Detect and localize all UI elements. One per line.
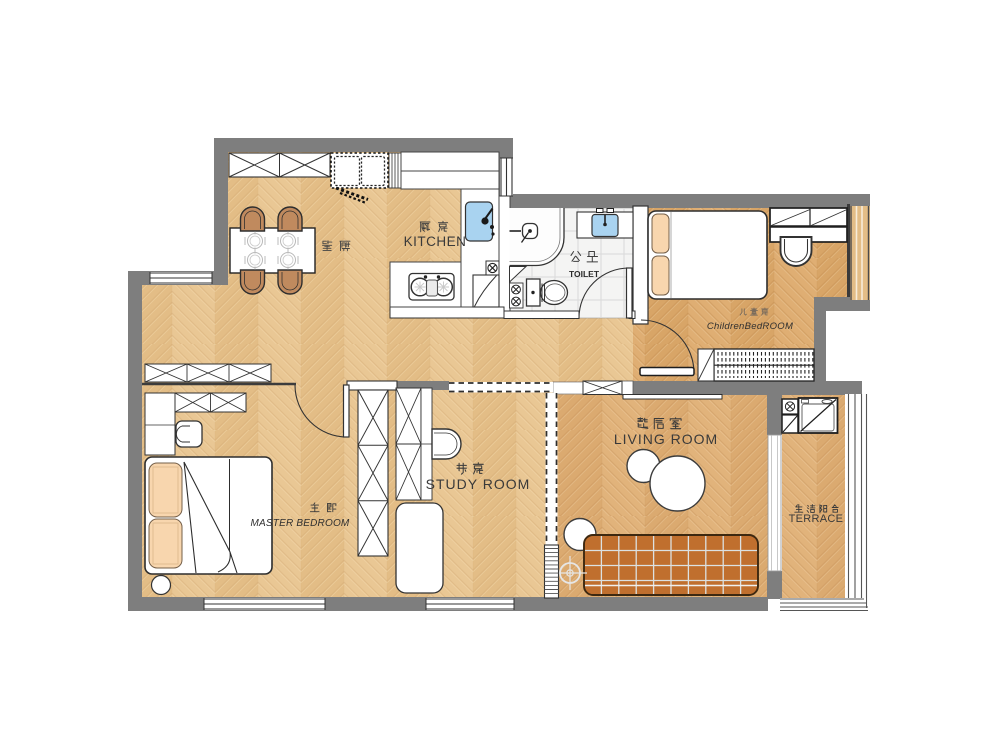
svg-text:STUDY ROOM: STUDY ROOM [426, 476, 531, 492]
svg-text:TOILET: TOILET [569, 269, 600, 279]
svg-text:LIVING ROOM: LIVING ROOM [614, 431, 718, 447]
svg-text:ChildrenBedROOM: ChildrenBedROOM [707, 321, 793, 332]
svg-text:KITCHEN: KITCHEN [404, 234, 467, 249]
svg-text:MASTER BEDROOM: MASTER BEDROOM [251, 518, 350, 529]
svg-text:TERRACE: TERRACE [789, 513, 844, 525]
